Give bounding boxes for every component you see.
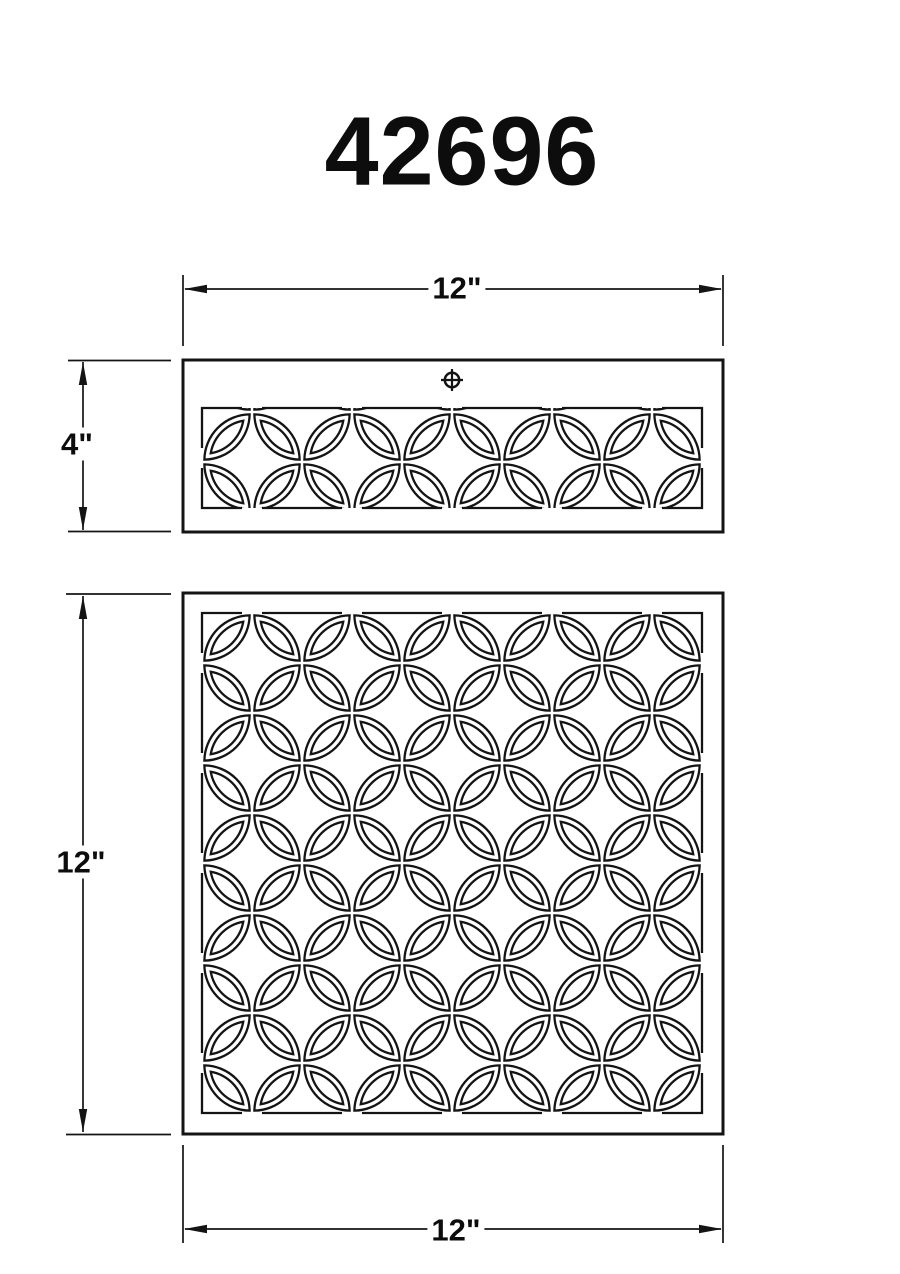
pattern-grid bbox=[202, 613, 702, 1113]
pattern-strip bbox=[202, 408, 702, 508]
dim-label-top-width: 12" bbox=[428, 272, 485, 305]
front-view bbox=[183, 593, 723, 1134]
part-number-title: 42696 bbox=[319, 103, 606, 200]
arrowhead-up-icon bbox=[79, 362, 87, 385]
dim-label-side-height: 4" bbox=[57, 428, 97, 461]
top-view bbox=[183, 360, 723, 532]
center-mark-icon bbox=[441, 369, 463, 391]
dim-label-front-width: 12" bbox=[427, 1214, 484, 1247]
dim-label-front-height: 12" bbox=[52, 846, 109, 879]
drawing-page: 42696 12" 4" 12" 12" bbox=[0, 0, 900, 1274]
arrowhead-left-icon bbox=[184, 285, 207, 293]
arrowhead-right-icon bbox=[699, 285, 722, 293]
arrowhead-right-icon bbox=[699, 1225, 722, 1233]
arrowhead-down-icon bbox=[79, 507, 87, 530]
arrowhead-left-icon bbox=[184, 1225, 207, 1233]
arrowhead-down-icon bbox=[79, 1109, 87, 1132]
arrowhead-up-icon bbox=[79, 596, 87, 619]
